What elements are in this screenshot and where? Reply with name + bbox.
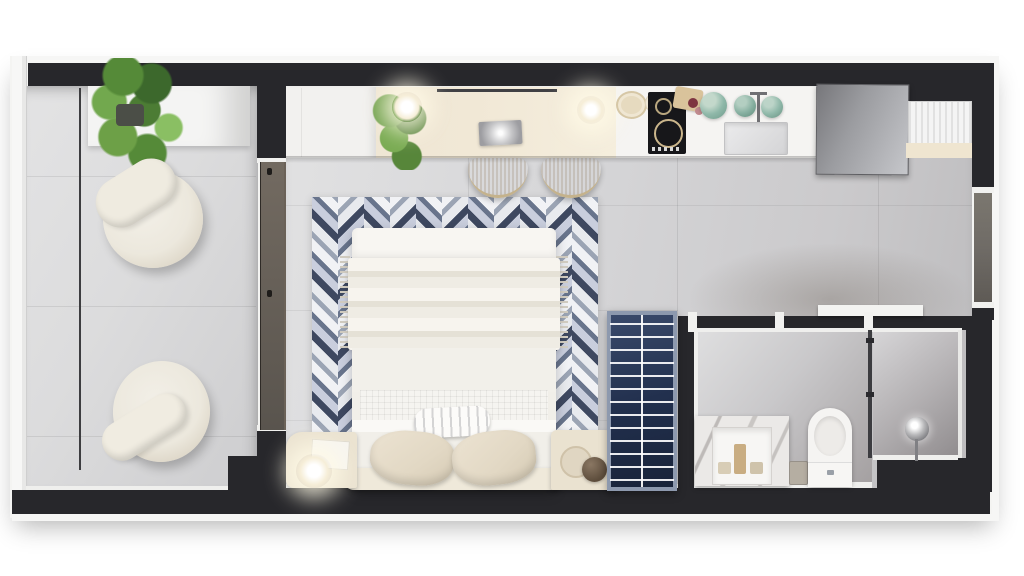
wall-bottom-balcony xyxy=(12,490,258,514)
shower-pole xyxy=(915,439,918,461)
desk-shelf-rail xyxy=(437,89,557,92)
kitchen-sink xyxy=(724,122,788,155)
teal-cookware xyxy=(700,92,727,119)
refrigerator xyxy=(816,84,910,176)
duvet xyxy=(352,348,556,392)
entry-door-trim xyxy=(972,187,994,193)
bathroom-faucet xyxy=(734,444,746,474)
duvet-fold xyxy=(352,228,556,262)
floorplan-render xyxy=(0,0,1024,576)
pendant-light xyxy=(577,96,605,124)
balcony-glass-divider xyxy=(79,88,81,470)
cabinet-seam xyxy=(301,88,302,157)
burner-ring xyxy=(655,98,672,115)
entry-door xyxy=(974,193,992,303)
balcony-railing xyxy=(12,56,27,514)
wall-right-upper xyxy=(972,63,994,189)
toilet-bowl xyxy=(814,416,846,456)
soap-dish xyxy=(750,462,763,474)
rug-column xyxy=(312,197,338,433)
pendant-light xyxy=(392,92,422,122)
laptop xyxy=(478,120,522,146)
floor-tile-seam xyxy=(677,158,678,316)
table-lamp xyxy=(296,454,332,488)
flush-button xyxy=(827,470,834,475)
waste-bin xyxy=(789,461,808,485)
round-tray xyxy=(582,457,607,482)
rug-column xyxy=(572,197,598,433)
sliding-glass-door xyxy=(260,162,286,430)
plate-stack xyxy=(616,91,647,119)
soap-dish xyxy=(718,462,731,474)
partition-hinge xyxy=(866,392,874,397)
plant-pot xyxy=(116,104,144,126)
wardrobe-rod xyxy=(641,315,643,487)
teal-cookware xyxy=(734,95,756,117)
kitchen-faucet xyxy=(757,94,760,122)
partition-hinge xyxy=(866,338,874,343)
outer-trim-bottom xyxy=(12,514,998,521)
bathroom-wall-left xyxy=(678,316,694,492)
kitchen-faucet-handle xyxy=(750,92,767,95)
wall-bottom-bedroom xyxy=(258,488,692,514)
bathroom-trim xyxy=(694,328,962,332)
door-hinge xyxy=(267,168,272,175)
shower-head xyxy=(905,417,929,441)
teal-cookware xyxy=(761,96,783,118)
bathroom-trim xyxy=(958,330,962,458)
partition-wall-top-stub xyxy=(257,84,286,162)
wall-step-block xyxy=(228,456,259,492)
door-hinge xyxy=(267,290,272,297)
cooktop-controls xyxy=(652,147,682,151)
partition-wall-bottom-stub xyxy=(257,430,286,492)
burner-ring xyxy=(654,119,683,148)
laundry-appliance xyxy=(908,101,972,145)
appliance-shelf xyxy=(906,143,972,158)
desk-cabinet xyxy=(286,87,376,158)
balcony-tile-seam xyxy=(26,306,256,307)
entry-door-trim xyxy=(972,302,994,308)
folded-blanket xyxy=(348,258,560,350)
wall-corner-block xyxy=(877,458,990,514)
